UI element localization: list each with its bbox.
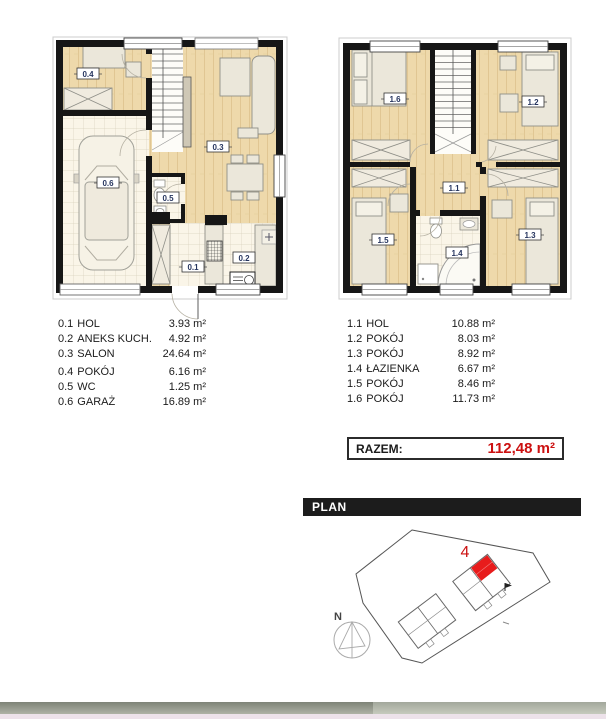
room-area: 24.64 m² (163, 347, 206, 362)
legend-row: 1.1HOL10.88 m² (347, 317, 495, 332)
room-area: 3.93 m² (169, 317, 206, 332)
room-area: 8.92 m² (458, 347, 495, 362)
legend-row: 0.5WC1.25 m² (58, 380, 206, 395)
room-label-0-2: 0.2 (233, 252, 255, 263)
ground-floor-plan: 0.4 0.3 0.6 0.5 0.1 0.2 (52, 34, 292, 326)
room-id: 1.3 (347, 348, 362, 360)
svg-text:0.4: 0.4 (82, 70, 94, 79)
site-plan-header: PLAN (303, 498, 581, 516)
svg-text:0.2: 0.2 (238, 254, 250, 263)
legend-row: 1.3POKÓJ8.92 m² (347, 347, 495, 362)
site-plan: 4 N (300, 522, 602, 680)
total-label: RAZEM: (356, 442, 403, 456)
room-area: 11.73 m² (452, 392, 495, 407)
svg-text:1.1: 1.1 (448, 184, 460, 193)
room-label-1-4: 1.4 (446, 247, 468, 258)
room-area: 8.46 m² (458, 377, 495, 392)
room-area: 6.67 m² (458, 362, 495, 377)
svg-text:1.6: 1.6 (389, 95, 401, 104)
room-label-0-5: 0.5 (157, 192, 179, 203)
first-floor-legend: 1.1HOL10.88 m² 1.2POKÓJ8.03 m² 1.3POKÓJ8… (347, 317, 495, 407)
svg-text:1.2: 1.2 (527, 98, 539, 107)
room-id: 0.5 (58, 381, 73, 393)
floorplan-page: 0.4 0.3 0.6 0.5 0.1 0.2 (0, 0, 606, 719)
room-label-1-1: 1.1 (440, 182, 468, 193)
property-boundary (356, 530, 550, 663)
car (74, 136, 139, 270)
window-bottom-strip (0, 714, 606, 719)
room-id: 0.1 (58, 318, 73, 330)
site-dash (503, 622, 509, 624)
room-name: SALON (77, 348, 114, 360)
room-area: 16.89 m² (163, 395, 206, 410)
first-floor-plan: 1.6 1.2 1.1 1.5 1.4 1.3 (336, 34, 574, 302)
room-id: 1.2 (347, 333, 362, 345)
total-area-box: RAZEM: 112,48 m² (347, 437, 564, 460)
svg-text:1.3: 1.3 (524, 231, 536, 240)
room-name: HOL (77, 318, 100, 330)
room-id: 1.1 (347, 318, 362, 330)
room-id: 1.5 (347, 378, 362, 390)
staircase (435, 47, 471, 154)
horizontal-scrollbar[interactable] (0, 702, 606, 714)
room-name: WC (77, 381, 95, 393)
room-1-6-furniture (352, 50, 410, 160)
svg-text:0.1: 0.1 (187, 263, 199, 272)
dining-table (227, 164, 263, 191)
room-label-1-5: 1.5 (369, 234, 397, 245)
compass-north-label: N (334, 611, 342, 623)
room-label-0-1: 0.1 (179, 261, 207, 272)
room-name: POKÓJ (366, 378, 403, 390)
total-value: 112,48 m² (487, 440, 555, 457)
room-label-1-3: 1.3 (516, 229, 544, 240)
room-name: HOL (366, 318, 389, 330)
room-name: GARAŻ (77, 396, 115, 408)
stair-railing (183, 77, 191, 147)
legend-row: 0.4POKÓJ6.16 m² (58, 365, 206, 380)
room-name: POKÓJ (366, 348, 403, 360)
svg-text:1.5: 1.5 (377, 236, 389, 245)
legend-row: 1.5POKÓJ8.46 m² (347, 377, 495, 392)
room-label-0-3: 0.3 (204, 141, 232, 152)
legend-row: 0.2ANEKS KUCH.4.92 m² (58, 332, 206, 347)
room-label-0-4: 0.4 (74, 68, 102, 79)
legend-row: 1.2POKÓJ8.03 m² (347, 332, 495, 347)
unit-number: 4 (461, 544, 470, 561)
svg-text:0.6: 0.6 (102, 179, 114, 188)
legend-row: 0.3SALON24.64 m² (58, 347, 206, 362)
room-name: POKÓJ (366, 333, 403, 345)
washer (418, 264, 438, 284)
room-id: 1.6 (347, 393, 362, 405)
svg-text:0.5: 0.5 (162, 194, 174, 203)
room-id: 0.3 (58, 348, 73, 360)
room-area: 8.03 m² (458, 332, 495, 347)
room-name: ANEKS KUCH. (77, 333, 152, 345)
room-area: 1.25 m² (169, 380, 206, 395)
svg-text:1.4: 1.4 (451, 249, 463, 258)
compass: N (334, 611, 370, 658)
hall-wardrobe (152, 225, 170, 284)
room-name: ŁAZIENKA (366, 363, 419, 375)
room-name: POKÓJ (366, 393, 403, 405)
room-id: 0.4 (58, 366, 73, 378)
legend-row: 1.4ŁAZIENKA6.67 m² (347, 362, 495, 377)
scrollbar-thumb[interactable] (0, 702, 373, 714)
site-plan-title: PLAN (312, 500, 347, 514)
room-area: 10.88 m² (452, 317, 495, 332)
room-area: 4.92 m² (169, 332, 206, 347)
room-id: 0.6 (58, 396, 73, 408)
room-label-0-6: 0.6 (94, 177, 122, 188)
room-label-1-6: 1.6 (381, 93, 409, 104)
room-id: 0.2 (58, 333, 73, 345)
legend-row: 1.6POKÓJ11.73 m² (347, 392, 495, 407)
room-area: 6.16 m² (169, 365, 206, 380)
legend-row: 0.6GARAŻ16.89 m² (58, 395, 206, 410)
legend-row: 0.1HOL3.93 m² (58, 317, 206, 332)
ground-floor-legend: 0.1HOL3.93 m² 0.2ANEKS KUCH.4.92 m² 0.3S… (58, 317, 206, 410)
room-label-1-2: 1.2 (519, 96, 547, 107)
room-name: POKÓJ (77, 366, 114, 378)
room-id: 1.4 (347, 363, 362, 375)
svg-text:0.3: 0.3 (212, 143, 224, 152)
